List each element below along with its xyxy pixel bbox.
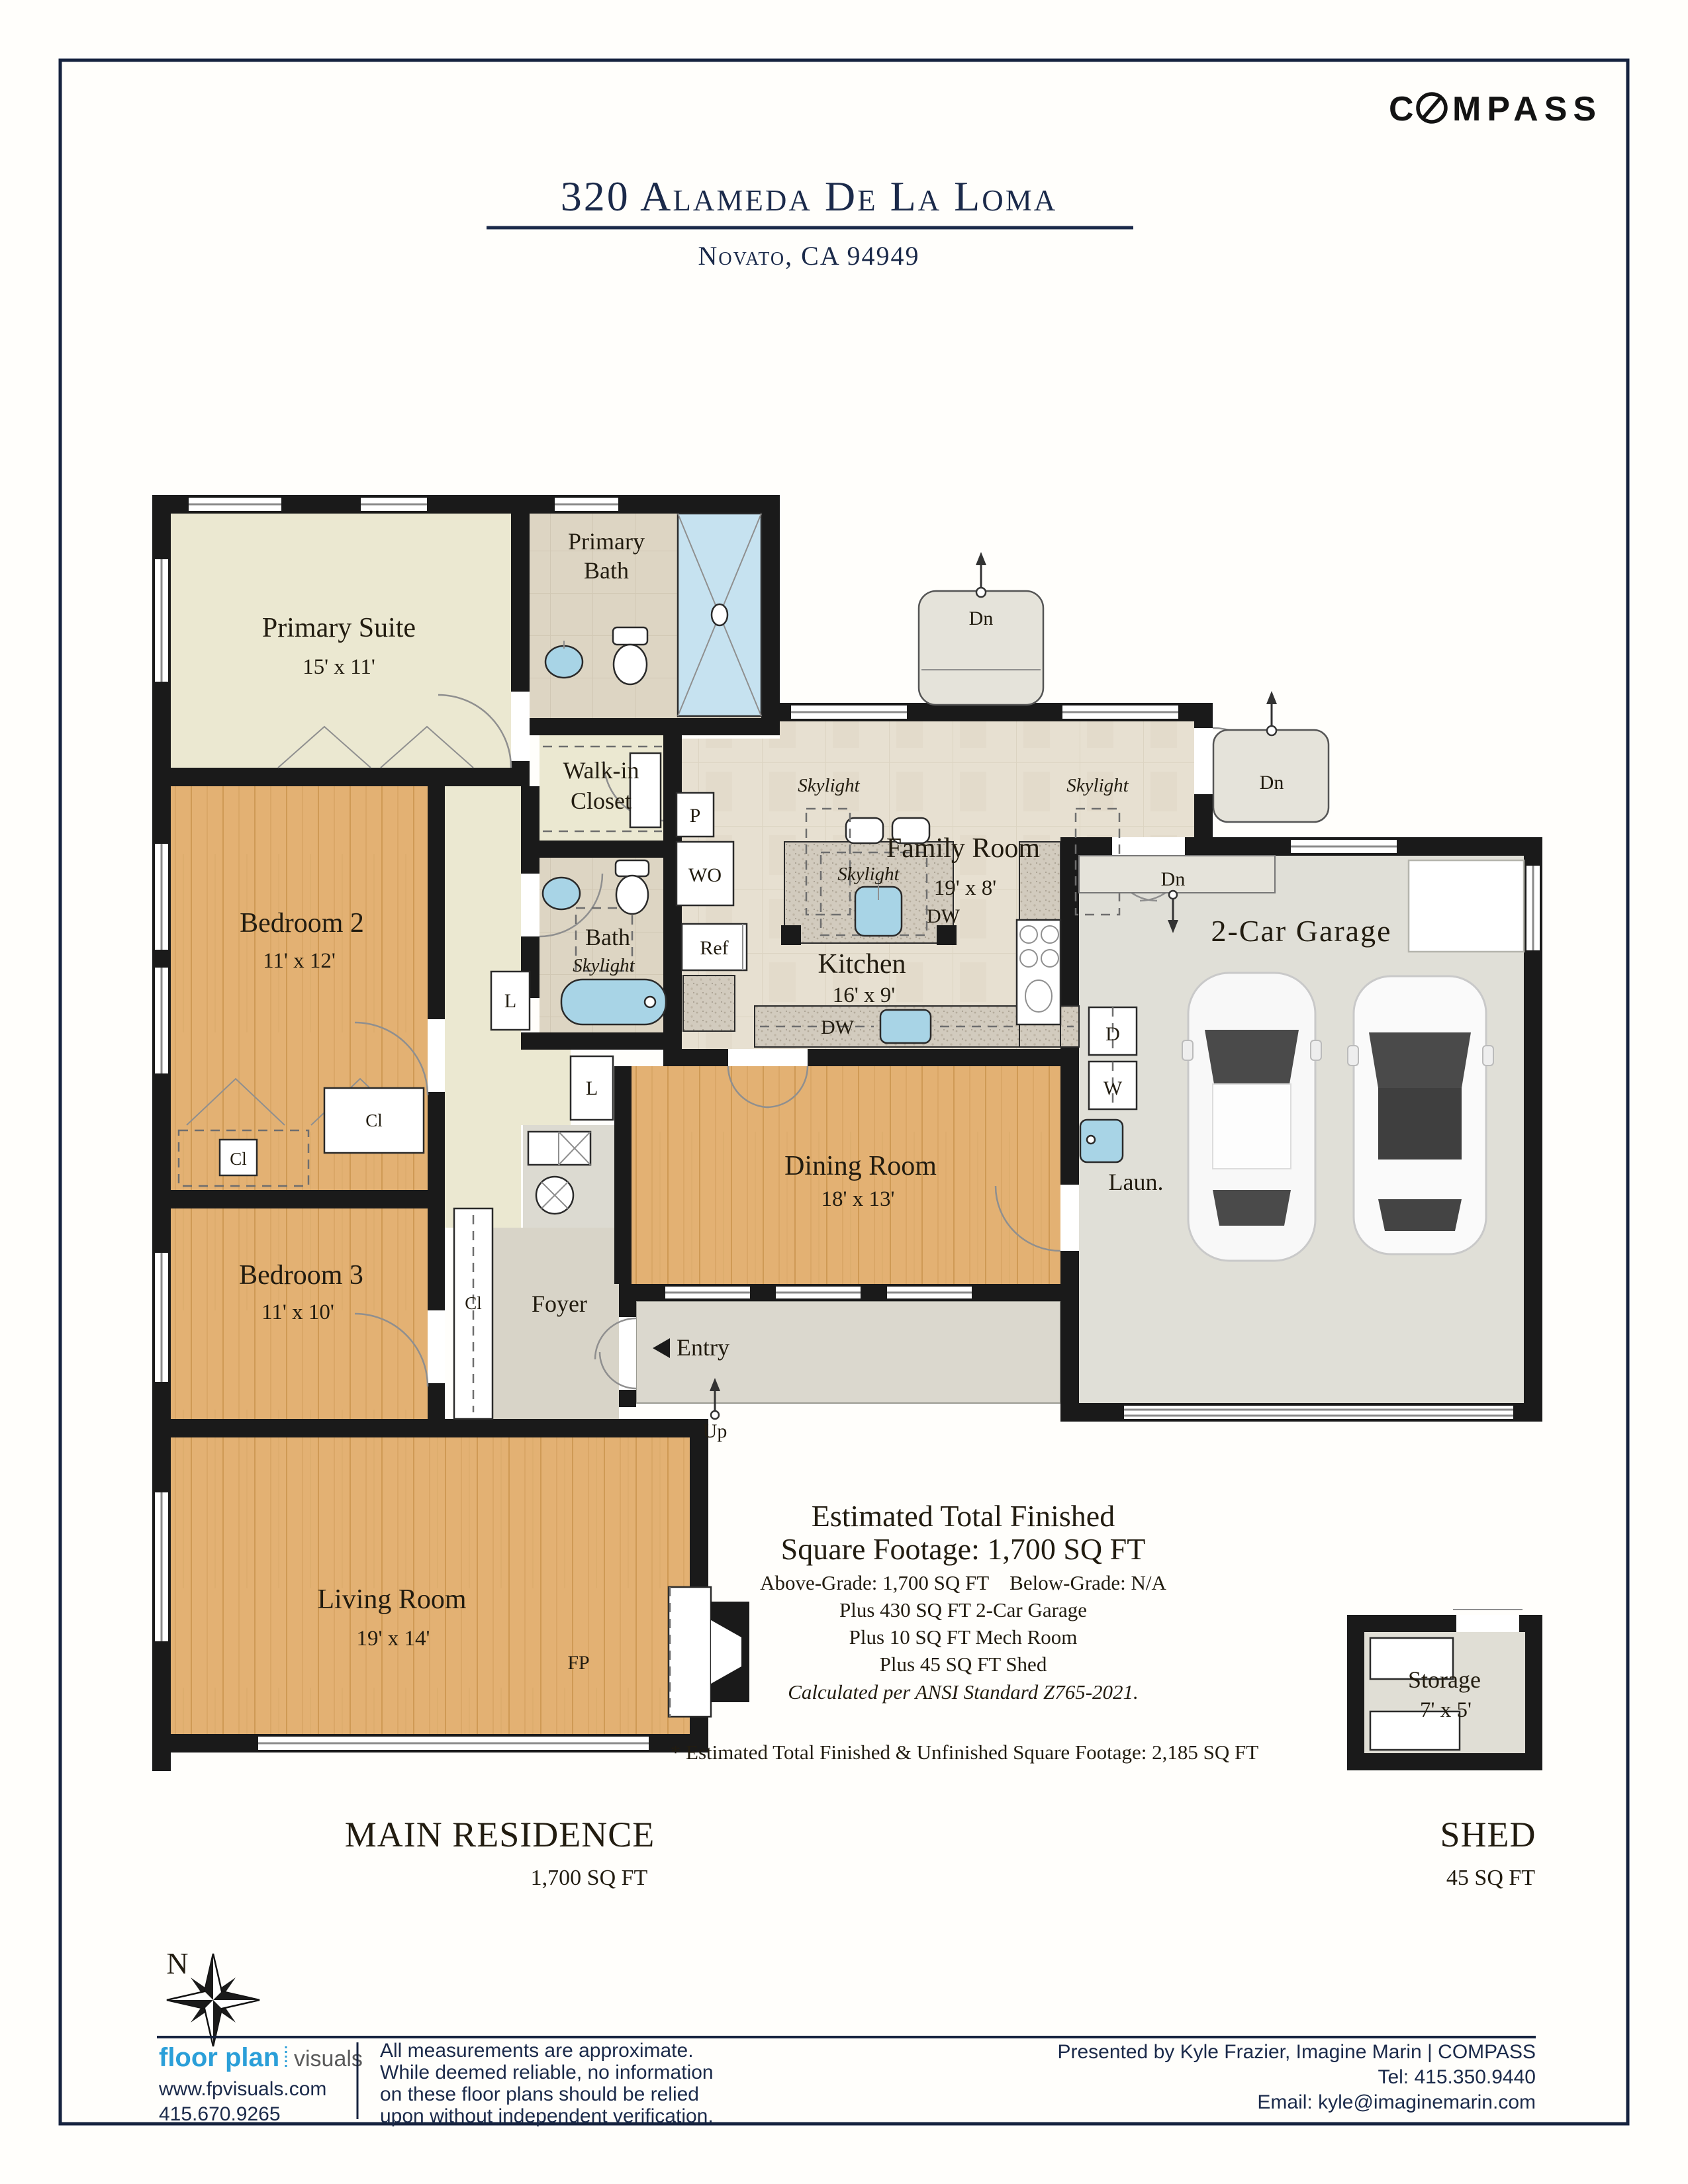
- summary-title-2: Square Footage: 1,700 SQ FT: [781, 1532, 1146, 1566]
- sink-icon: [543, 878, 580, 909]
- cl-label: Cl: [230, 1149, 247, 1169]
- summary-grade: Above-Grade: 1,700 SQ FT Below-Grade: N/…: [760, 1571, 1166, 1594]
- l-label: L: [586, 1077, 598, 1099]
- window: [258, 1737, 649, 1750]
- footer-email[interactable]: Email: kyle@imaginemarin.com: [1257, 2091, 1536, 2113]
- ref-label: Ref: [700, 937, 728, 959]
- footer: floor plan visuals www.fpvisuals.com 415…: [157, 2037, 1536, 2127]
- footer-website[interactable]: www.fpvisuals.com: [158, 2078, 326, 2100]
- room-label-primary-suite: Primary Suite: [262, 613, 416, 643]
- room-label-kitchen: Kitchen: [818, 949, 906, 979]
- window: [555, 498, 618, 511]
- window: [155, 968, 168, 1073]
- toilet-icon: [613, 627, 647, 684]
- window: [887, 1287, 972, 1298]
- room-dims-kitchen: 16' x 9': [833, 983, 895, 1007]
- window: [155, 559, 168, 682]
- window: [791, 705, 907, 719]
- floor-plan-page: 320 Alameda De La Loma Novato, CA 94949 …: [0, 0, 1688, 2184]
- room-label-bath: Bath: [585, 924, 630, 950]
- compass-rose-icon: N: [166, 1946, 259, 2046]
- window: [1291, 840, 1397, 853]
- room-label-walkin-2: Closet: [571, 788, 632, 814]
- skylight-label: Skylight: [573, 955, 635, 976]
- dw-label: DW: [821, 1017, 855, 1038]
- footer-disclaimer-2: While deemed reliable, no information: [380, 2062, 714, 2083]
- skylight-label: Skylight: [1066, 775, 1129, 796]
- stool-icon: [846, 818, 883, 843]
- foyer-floor: [492, 1228, 619, 1419]
- window: [155, 1253, 168, 1382]
- section-labels: MAIN RESIDENCE 1,700 SQ FT SHED 45 SQ FT: [345, 1815, 1536, 1890]
- room-label-storage: Storage: [1408, 1666, 1481, 1693]
- brand-letter-c: C: [1389, 90, 1420, 128]
- summary-shed: Plus 45 SQ FT Shed: [880, 1653, 1047, 1676]
- header: 320 Alameda De La Loma Novato, CA 94949 …: [487, 90, 1602, 271]
- wo-label: WO: [688, 864, 722, 886]
- washer-label: W: [1103, 1077, 1123, 1099]
- window: [189, 498, 281, 511]
- dn-label: Dn: [969, 608, 994, 629]
- room-label-bedroom3: Bedroom 3: [239, 1260, 363, 1291]
- room-dims-bedroom2: 11' x 12': [263, 949, 336, 973]
- dn-label: Dn: [1161, 868, 1186, 890]
- room-label-bedroom2: Bedroom 2: [240, 908, 364, 938]
- summary-title-1: Estimated Total Finished: [812, 1499, 1115, 1533]
- fpv-logo: floor plan visuals: [159, 2043, 363, 2072]
- shed-sqft: 45 SQ FT: [1446, 1866, 1535, 1890]
- room-label-garage: 2-Car Garage: [1211, 914, 1391, 948]
- summary-ansi: Calculated per ANSI Standard Z765-2021.: [788, 1680, 1139, 1704]
- fpv-logo-secondary: visuals: [294, 2046, 363, 2071]
- room-label-family: Family Room: [886, 833, 1041, 864]
- skylight-label: Skylight: [837, 864, 900, 885]
- summary-garage: Plus 430 SQ FT 2-Car Garage: [839, 1598, 1087, 1621]
- footer-phone: 415.670.9265: [159, 2103, 281, 2125]
- fpv-logo-primary: floor plan: [159, 2043, 279, 2072]
- room-label-living: Living Room: [317, 1584, 467, 1615]
- main-residence-sqft: 1,700 SQ FT: [531, 1866, 648, 1890]
- dryer-label: D: [1105, 1023, 1120, 1045]
- kitchen-sink-icon: [880, 1010, 931, 1043]
- dn-label: Dn: [1260, 772, 1284, 794]
- room-label-foyer: Foyer: [532, 1291, 587, 1317]
- window: [1062, 705, 1178, 719]
- room-label-walkin-1: Walk-in: [563, 757, 639, 784]
- footer-disclaimer-1: All measurements are approximate.: [380, 2040, 694, 2062]
- compass-logo: C MPASS: [1389, 90, 1602, 128]
- brand-letters-rest: MPASS: [1452, 90, 1602, 128]
- compass-o-icon: [1418, 94, 1446, 122]
- page-subtitle: Novato, CA 94949: [698, 241, 919, 271]
- room-label-primary-bath-2: Bath: [584, 557, 629, 584]
- cl-label: Cl: [465, 1293, 482, 1313]
- room-label-primary-bath-1: Primary: [568, 528, 645, 555]
- summary-block: Estimated Total Finished Square Footage:…: [671, 1499, 1259, 1764]
- window: [665, 1287, 750, 1298]
- room-label-entry: Entry: [677, 1334, 729, 1361]
- hallway-jog-floor: [521, 1050, 571, 1125]
- north-label: N: [166, 1946, 188, 1980]
- window: [155, 844, 168, 950]
- window: [776, 1287, 861, 1298]
- cl-label: Cl: [365, 1111, 383, 1130]
- kitchen-sink-icon: [855, 880, 902, 936]
- furnace-icon: [528, 1132, 590, 1165]
- window: [1526, 866, 1540, 950]
- shower-icon: [678, 514, 761, 716]
- up-label: Up: [703, 1420, 727, 1442]
- skylight-label: Skylight: [798, 775, 860, 796]
- p-label: P: [690, 805, 701, 827]
- window: [361, 498, 427, 511]
- room-dims-dining: 18' x 13': [821, 1187, 895, 1211]
- summary-footnote: * Estimated Total Finished & Unfinished …: [671, 1741, 1259, 1764]
- dw-label: DW: [927, 905, 961, 927]
- room-label-dining: Dining Room: [784, 1151, 937, 1181]
- car-icon: [1182, 973, 1321, 1261]
- fp-label: FP: [567, 1652, 589, 1674]
- shed-label: SHED: [1440, 1815, 1536, 1854]
- footer-tel: Tel: 415.350.9440: [1378, 2066, 1536, 2088]
- room-dims-storage: 7' x 5': [1420, 1698, 1472, 1722]
- bathtub-icon: [561, 979, 666, 1024]
- summary-mech: Plus 10 SQ FT Mech Room: [849, 1625, 1078, 1649]
- footer-disclaimer-4: upon without independent verification.: [380, 2105, 714, 2127]
- page-title: 320 Alameda De La Loma: [561, 173, 1058, 220]
- stove-icon: [1017, 920, 1060, 1024]
- room-dims-primary-suite: 15' x 11': [303, 655, 375, 679]
- room-dims-bedroom3: 11' x 10': [261, 1300, 334, 1324]
- room-dims-family: 19' x 8': [934, 876, 996, 900]
- footer-presented: Presented by Kyle Frazier, Imagine Marin…: [1057, 2041, 1536, 2063]
- water-heater-icon: [536, 1177, 573, 1214]
- toilet-icon: [616, 860, 649, 914]
- fireplace-icon: [669, 1587, 749, 1717]
- l-label: L: [504, 990, 516, 1012]
- room-dims-living: 19' x 14': [357, 1627, 430, 1651]
- stair-landing-right: [1213, 691, 1329, 822]
- garage-door: [1124, 1406, 1513, 1419]
- footer-disclaimer-3: on these floor plans should be relied: [380, 2083, 699, 2105]
- window: [155, 1492, 168, 1641]
- laundry-sink-icon: [1080, 1120, 1123, 1162]
- main-residence-label: MAIN RESIDENCE: [345, 1815, 655, 1854]
- car-icon: [1348, 976, 1493, 1254]
- room-label-laundry: Laun.: [1109, 1169, 1164, 1195]
